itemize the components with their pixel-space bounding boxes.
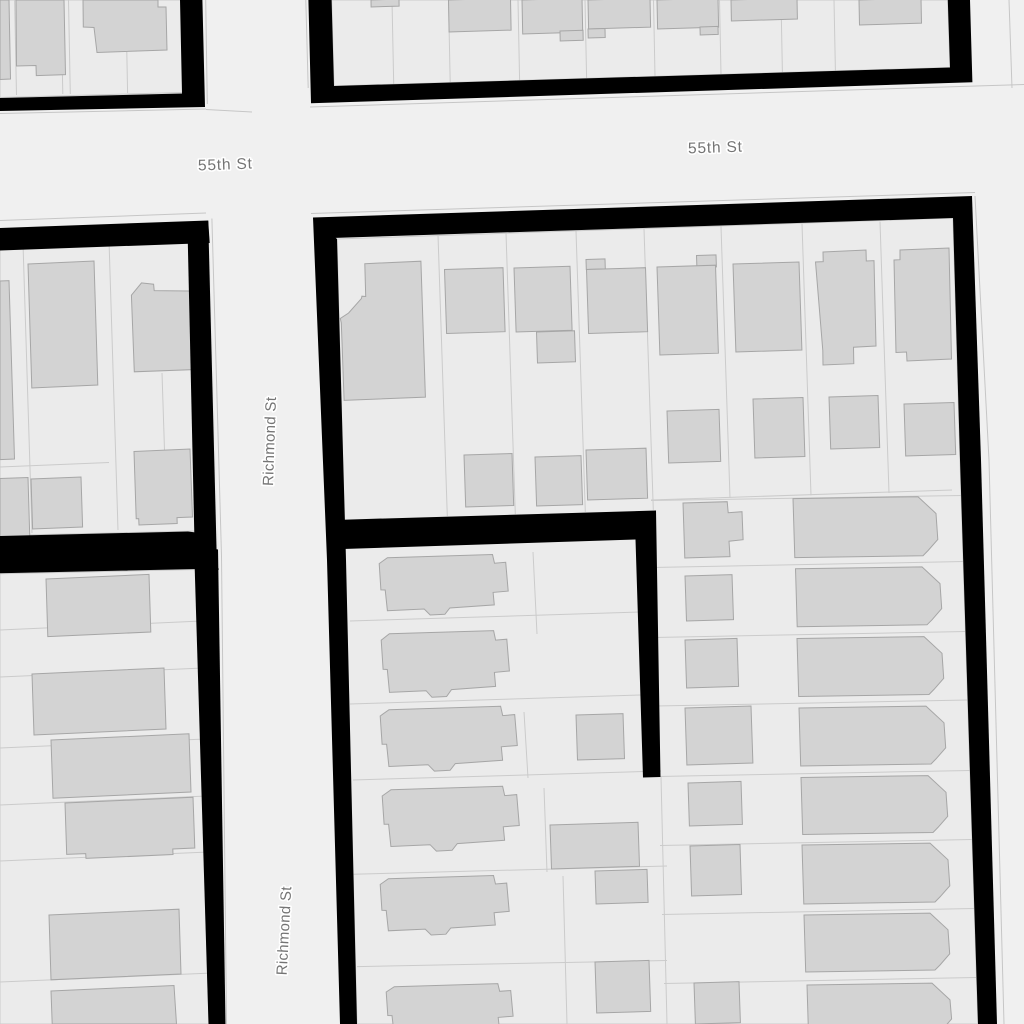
svg-text:55th St: 55th St <box>688 139 743 158</box>
svg-text:Richmond St: Richmond St <box>260 396 280 486</box>
svg-text:55th St: 55th St <box>198 155 253 174</box>
